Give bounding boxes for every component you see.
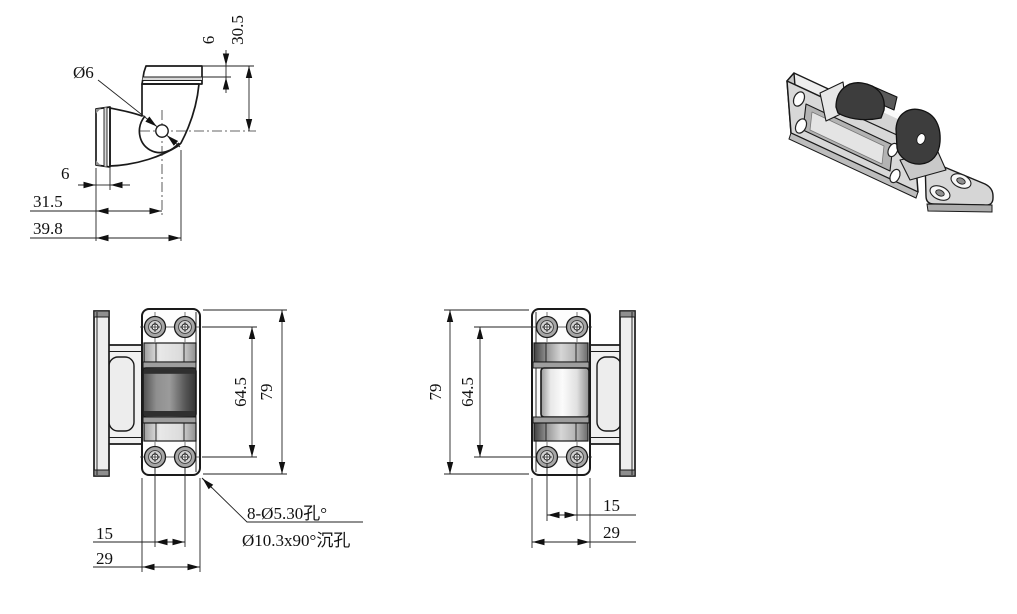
front-arm-face [109, 357, 134, 431]
pivot-hole [156, 125, 168, 137]
back-flange [620, 311, 635, 476]
dim-height-30-5: 30.5 [228, 15, 249, 131]
dim-label-height-79: 79 [257, 384, 276, 401]
drawing-canvas: Ø6 6 30.5 6 31.5 [0, 0, 1017, 614]
dim-hole-span-15: 15 [547, 496, 636, 515]
dim-hole-span-64-5: 64.5 [458, 327, 480, 457]
dim-hole-span-15: 15 [93, 524, 185, 543]
flange-cap [94, 470, 109, 476]
dim-flange-thickness: 6 [61, 164, 130, 185]
back-knuckle-ring [533, 362, 589, 368]
top-plate-band [143, 77, 203, 81]
back-view: 79 64.5 15 29 [426, 309, 636, 548]
barrel-band [144, 369, 195, 374]
dim-label-overall-depth: 39.8 [33, 219, 63, 238]
hole-note-line2: Ø10.3x90°沉孔 [242, 531, 350, 550]
dim-label-hole-span-v: 64.5 [458, 377, 477, 407]
dim-overall-depth-39-8: 39.8 [30, 219, 181, 238]
dim-width-29: 29 [93, 549, 200, 568]
dim-hole-span-64-5: 64.5 [231, 327, 252, 457]
dim-label-plate-thickness: 6 [199, 36, 218, 45]
front-barrel [143, 368, 196, 417]
dim-label-width-29: 29 [96, 549, 113, 568]
front-knuckle-ring [143, 362, 196, 368]
side-flange-edge [96, 107, 110, 167]
dim-label-flange-thickness: 6 [61, 164, 70, 183]
front-flange [94, 311, 109, 476]
front-view: 64.5 79 15 29 8-Ø5.30孔° Ø10.3x90°沉孔 [93, 309, 363, 572]
dim-height-79: 79 [426, 310, 450, 474]
barrel-band [144, 411, 195, 416]
dim-label-width-29: 29 [603, 523, 620, 542]
flange-cap [94, 311, 109, 317]
dim-width-29: 29 [532, 523, 636, 542]
back-knuckle-bottom [534, 423, 588, 441]
isometric-view [787, 73, 993, 212]
front-knuckle-ring [143, 417, 196, 423]
flange-cap [620, 311, 635, 317]
hole-note-line1: 8-Ø5.30孔° [247, 504, 327, 523]
front-knuckle-top [144, 343, 196, 362]
back-knuckle-top [534, 343, 588, 362]
dim-label-hole-span-v: 64.5 [231, 377, 250, 407]
dim-label-hole-diameter: Ø6 [73, 63, 94, 82]
front-knuckle-bottom [144, 423, 196, 441]
hole-note: 8-Ø5.30孔° Ø10.3x90°沉孔 [202, 478, 363, 550]
side-view: Ø6 6 30.5 6 31.5 [30, 15, 256, 241]
back-barrel [541, 368, 589, 417]
dim-label-height-30-5: 30.5 [228, 15, 247, 45]
dim-label-span-15: 15 [603, 496, 620, 515]
dim-label-span-15: 15 [96, 524, 113, 543]
hinge-technical-drawing: Ø6 6 30.5 6 31.5 [0, 0, 1017, 614]
dim-height-79: 79 [257, 310, 282, 474]
top-plate-edge [142, 66, 202, 84]
flange-cap [620, 470, 635, 476]
back-knuckle-ring [533, 417, 589, 423]
back-arm-face [597, 357, 621, 431]
dim-label-center-offset: 31.5 [33, 192, 63, 211]
dim-label-height-79: 79 [426, 384, 445, 401]
iso-foot-plate-edge [927, 204, 992, 212]
